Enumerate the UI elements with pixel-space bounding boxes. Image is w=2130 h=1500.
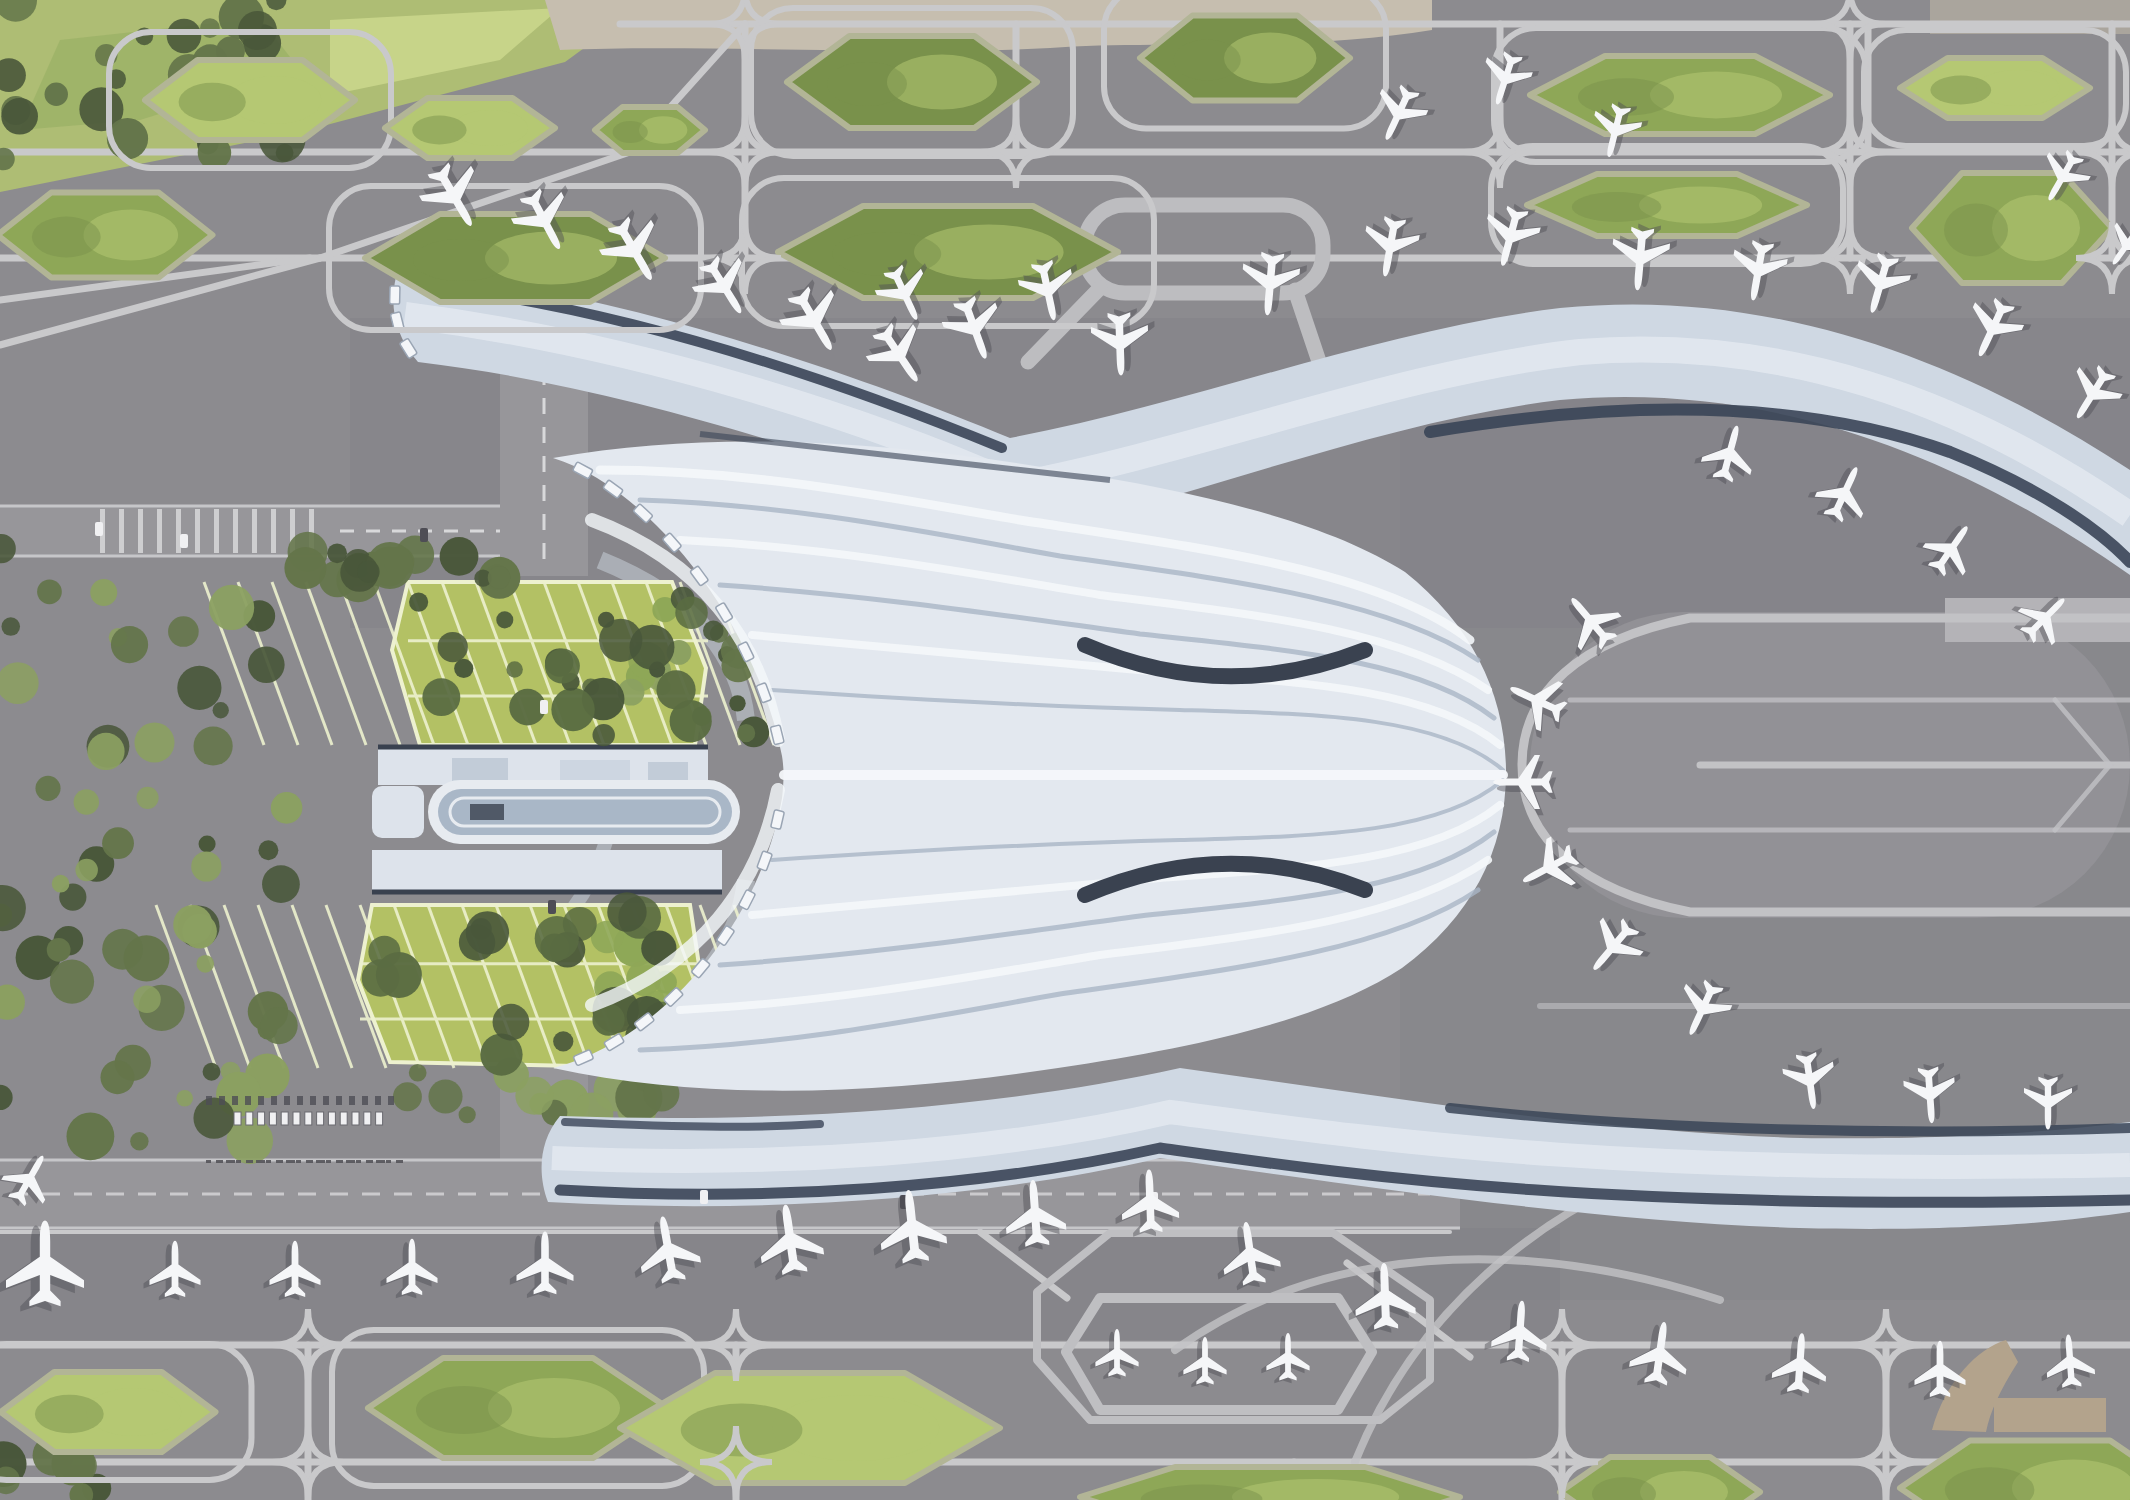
tree-canopy	[506, 661, 522, 677]
earth-bar	[1994, 1398, 2106, 1432]
parked-car	[375, 1096, 381, 1105]
tree-canopy	[271, 792, 303, 824]
parked-car	[245, 1096, 251, 1105]
parked-car	[219, 1096, 225, 1105]
island-grass-patch	[827, 62, 907, 106]
entrance-canopy	[390, 286, 400, 304]
vehicle	[540, 700, 548, 714]
parked-car	[232, 1096, 238, 1105]
pavement-marking	[276, 1160, 283, 1163]
pavement-marking	[226, 1160, 235, 1163]
tree-canopy	[168, 616, 199, 647]
bus	[305, 1112, 312, 1125]
airport-aerial-render	[0, 0, 2130, 1500]
tree-canopy	[428, 1079, 462, 1113]
tree-canopy	[194, 726, 233, 765]
tree-canopy	[607, 892, 646, 931]
tree-canopy	[45, 83, 68, 106]
tree-canopy	[52, 875, 70, 893]
vehicle	[420, 528, 428, 542]
tree-canopy	[545, 649, 580, 684]
tree-canopy	[454, 659, 473, 678]
tree-canopy	[35, 776, 60, 801]
parked-car	[297, 1096, 303, 1105]
tree-canopy	[133, 985, 161, 1013]
pavement-marking	[236, 1160, 241, 1163]
bus	[317, 1112, 324, 1125]
tree-canopy	[675, 596, 708, 629]
tree-canopy	[376, 952, 422, 998]
tree-canopy	[173, 905, 212, 944]
tree-canopy	[87, 733, 124, 770]
parked-car	[323, 1096, 329, 1105]
tree-canopy	[134, 723, 174, 763]
island-grass-patch	[412, 116, 466, 145]
parked-car	[284, 1096, 290, 1105]
pavement-marking	[396, 1160, 403, 1163]
bus	[376, 1112, 383, 1125]
tree-canopy	[177, 666, 221, 710]
tree-canopy	[409, 593, 428, 612]
tree-canopy	[209, 585, 254, 630]
tree-canopy	[599, 619, 642, 662]
pavement-marking	[326, 1160, 331, 1163]
bus	[328, 1112, 335, 1125]
parked-car	[206, 1096, 212, 1105]
oval-skylight	[470, 804, 504, 820]
tree-canopy	[136, 787, 158, 809]
bus	[269, 1112, 276, 1125]
tree-canopy	[50, 959, 94, 1003]
bus	[293, 1112, 300, 1125]
tree-canopy	[551, 688, 594, 731]
island-grass-patch	[1930, 76, 1991, 105]
pavement-marking	[206, 1160, 211, 1163]
tree-canopy	[176, 1090, 193, 1107]
tree-canopy	[203, 1063, 221, 1081]
vehicle	[700, 1190, 708, 1204]
tree-canopy	[459, 1106, 476, 1123]
parked-car	[336, 1096, 342, 1105]
tree-canopy	[37, 579, 62, 604]
airport-masterplan-canvas	[0, 0, 2130, 1500]
tree-canopy	[1, 617, 20, 636]
pavement-marking	[296, 1160, 301, 1163]
island-grass-patch	[1572, 192, 1662, 222]
tree-canopy	[100, 1060, 134, 1094]
bus	[340, 1112, 347, 1125]
pavement-marking	[306, 1160, 313, 1163]
tree-canopy	[213, 702, 229, 718]
oval-west-pod	[372, 786, 424, 838]
tree-canopy	[535, 916, 579, 960]
tree-canopy	[102, 929, 143, 970]
vehicle	[180, 534, 188, 548]
island-grass-patch	[1174, 40, 1241, 81]
tree-canopy	[75, 859, 97, 881]
gtc-south-slab	[372, 850, 722, 894]
pavement-marking	[246, 1160, 253, 1163]
pavement-marking	[346, 1160, 355, 1163]
tree-canopy	[737, 724, 755, 742]
tree-canopy	[74, 789, 99, 814]
tree-canopy	[130, 1132, 148, 1150]
bus	[364, 1112, 371, 1125]
tree-canopy	[409, 1064, 427, 1082]
pavement-marking	[316, 1160, 325, 1163]
tree-canopy	[440, 537, 479, 576]
island-grass-patch	[35, 1395, 104, 1433]
tree-canopy	[1, 98, 38, 135]
tree-canopy	[248, 646, 285, 683]
tree-canopy	[703, 621, 724, 642]
tree-canopy	[111, 626, 148, 663]
tree-canopy	[438, 632, 468, 662]
parked-car	[388, 1096, 394, 1105]
tree-canopy	[191, 851, 221, 881]
parked-car	[310, 1096, 316, 1105]
pavement-marking	[386, 1160, 391, 1163]
pavement-marking	[376, 1160, 385, 1163]
pavement-marking	[256, 1160, 265, 1163]
bus	[281, 1112, 288, 1125]
pavement-marking	[216, 1160, 223, 1163]
parked-car	[349, 1096, 355, 1105]
tree-canopy	[592, 724, 614, 746]
tree-canopy	[493, 1004, 530, 1041]
tree-canopy	[199, 835, 216, 852]
tree-canopy	[261, 1007, 298, 1044]
bus	[246, 1112, 253, 1125]
tree-canopy	[196, 955, 214, 973]
tree-canopy	[193, 1098, 234, 1139]
tree-canopy	[262, 865, 300, 903]
tree-canopy	[496, 611, 513, 628]
tree-canopy	[553, 1031, 573, 1051]
tree-canopy	[670, 700, 712, 742]
tree-canopy	[488, 566, 511, 589]
pavement-marking	[356, 1160, 361, 1163]
tree-canopy	[90, 579, 117, 606]
island-grass-patch	[413, 239, 509, 281]
bus	[258, 1112, 265, 1125]
south-pier-north-edge	[565, 1122, 820, 1127]
bus	[352, 1112, 359, 1125]
vehicle	[95, 522, 103, 536]
tree-canopy	[729, 695, 745, 711]
pavement-marking	[366, 1160, 373, 1163]
tree-canopy	[66, 1112, 114, 1160]
parked-car	[362, 1096, 368, 1105]
island-grass-patch	[179, 83, 246, 121]
tree-canopy	[258, 840, 278, 860]
tree-canopy	[47, 938, 71, 962]
pavement-marking	[266, 1160, 271, 1163]
tree-canopy	[466, 911, 509, 954]
tree-canopy	[393, 1082, 422, 1111]
vehicle	[548, 900, 556, 914]
island-grass-patch	[1944, 204, 2008, 257]
tree-canopy	[357, 561, 379, 583]
island-grass-patch	[32, 217, 101, 258]
parked-car	[271, 1096, 277, 1105]
tree-canopy	[102, 827, 134, 859]
tree-canopy	[515, 1077, 553, 1115]
tree-canopy	[284, 547, 326, 589]
island-grass-patch	[416, 1386, 512, 1434]
island-grass-patch	[613, 121, 648, 143]
tree-canopy	[167, 19, 202, 54]
pavement-marking	[336, 1160, 343, 1163]
bus	[234, 1112, 241, 1125]
parked-car	[258, 1096, 264, 1105]
tree-canopy	[422, 678, 460, 716]
tree-canopy	[480, 1033, 522, 1075]
pavement-marking	[286, 1160, 295, 1163]
